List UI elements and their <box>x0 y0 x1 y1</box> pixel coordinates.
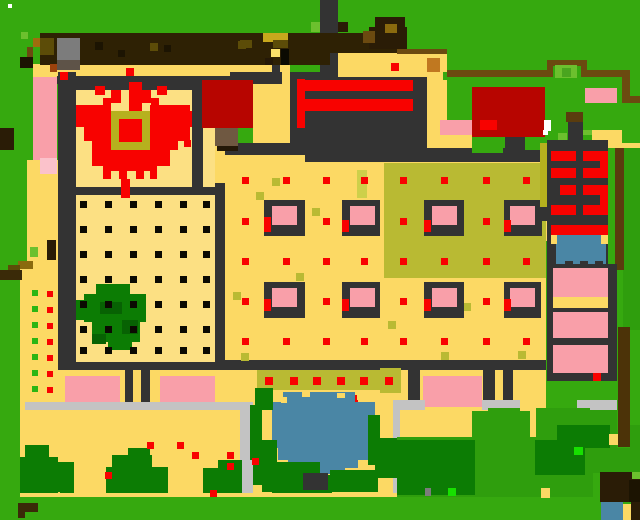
flower-dot <box>441 338 448 345</box>
pixel-block <box>337 393 345 398</box>
grass-tuft <box>241 353 249 361</box>
pixel-block <box>504 299 511 311</box>
pixel-block <box>273 40 288 48</box>
red-shelf <box>560 185 576 195</box>
pixel-block <box>553 297 608 308</box>
flower-dot <box>32 338 38 344</box>
flower-dot <box>441 258 448 265</box>
flower-dot <box>242 338 249 345</box>
pixel-block <box>480 120 497 130</box>
pixel-block <box>543 130 548 135</box>
flower-dot <box>360 377 368 385</box>
seed-dot <box>155 276 162 283</box>
grass-tuft <box>463 303 471 311</box>
flower-dot <box>400 258 407 265</box>
pixel-block <box>47 240 56 260</box>
pixel-block <box>272 288 297 307</box>
pixel-block <box>593 373 601 381</box>
flower-dot <box>227 452 234 459</box>
path <box>393 400 425 410</box>
pixel-block <box>562 68 571 77</box>
seed-dot <box>203 276 210 283</box>
red-shelf <box>600 161 608 168</box>
roof-stripe <box>297 80 413 91</box>
roof-stripe <box>305 99 413 111</box>
flower-dot <box>483 177 490 184</box>
pixel-block <box>272 206 297 225</box>
pixel-block <box>126 68 134 76</box>
path <box>25 402 241 410</box>
outer-wall <box>58 72 76 370</box>
water-corner <box>601 502 623 520</box>
pixel-block <box>540 207 547 221</box>
bush <box>128 448 150 462</box>
sun-emblem <box>150 171 157 179</box>
gate-post <box>125 370 133 403</box>
wood-corner <box>18 503 25 518</box>
seed-dot <box>155 251 162 258</box>
flower-dot <box>265 377 273 385</box>
sun-emblem <box>150 141 178 150</box>
pixel-block <box>510 288 535 307</box>
flower-dot <box>361 177 368 184</box>
flower-dot <box>242 258 249 265</box>
flower-dot <box>323 338 330 345</box>
flower-dot <box>105 472 112 479</box>
seed-dot <box>105 201 112 208</box>
flower-dot <box>523 177 530 184</box>
pixel-block <box>33 38 40 47</box>
flower-dot <box>323 177 330 184</box>
seed-dot <box>180 226 187 233</box>
seed-dot <box>130 276 137 283</box>
tree-canopy <box>623 148 640 330</box>
sun-emblem <box>157 86 167 95</box>
red-shelf <box>551 151 576 161</box>
sun-emblem <box>111 90 121 103</box>
roof-stripe <box>297 79 305 128</box>
flower-dot <box>313 377 321 385</box>
flower-dot <box>400 177 407 184</box>
stone-block <box>57 38 80 60</box>
stone-lantern <box>566 112 583 122</box>
seed-dot <box>130 301 137 308</box>
pixel-block <box>465 100 472 112</box>
plot-frame <box>58 187 215 195</box>
pink-column <box>33 77 57 160</box>
seed-dot <box>203 347 210 354</box>
sun-emblem-center <box>119 119 142 142</box>
pixel-block <box>357 170 367 198</box>
seed-dot <box>130 326 137 333</box>
sun-emblem <box>84 127 111 141</box>
pink-shelf <box>553 268 608 297</box>
seed-dot <box>203 326 210 333</box>
flower-dot <box>400 298 407 305</box>
branch <box>0 270 22 280</box>
pink-shelf <box>553 345 608 373</box>
flower-dot <box>32 386 38 392</box>
pixel-block <box>20 57 33 68</box>
red-shelf <box>583 205 608 215</box>
red-shelf <box>583 185 608 195</box>
garden-fence <box>447 70 547 77</box>
flower-dot <box>323 258 330 265</box>
seed-dot <box>80 276 87 283</box>
garden-fence <box>630 96 640 103</box>
flower-dot <box>283 258 290 265</box>
grass-tuft <box>233 292 241 300</box>
flower-dot <box>252 458 259 465</box>
white-dot <box>8 4 12 8</box>
pixel-block <box>551 235 557 244</box>
pixel-block <box>510 206 535 225</box>
bench <box>440 120 472 135</box>
sun-emblem <box>103 166 157 171</box>
flower-dot <box>523 338 530 345</box>
flower-dot <box>323 218 330 225</box>
pixel-block <box>632 472 640 479</box>
seed-dot <box>130 226 137 233</box>
sun-emblem <box>121 179 130 198</box>
flower-dot <box>242 177 249 184</box>
bush <box>330 470 378 492</box>
pixel-block <box>118 50 125 57</box>
flower-dot <box>290 377 298 385</box>
bush <box>106 467 168 493</box>
seed-dot <box>180 201 187 208</box>
grass-tuft <box>296 273 304 281</box>
sun-emblem <box>136 171 144 179</box>
gate-post <box>141 370 150 403</box>
flower-dot <box>147 442 154 449</box>
orange-block <box>427 58 440 72</box>
sun-emblem <box>150 111 192 127</box>
bench <box>160 376 215 403</box>
flower-dot <box>323 298 330 305</box>
seed-dot <box>80 326 87 333</box>
seed-dot <box>105 251 112 258</box>
pixel-block <box>432 206 457 225</box>
flower-dot <box>32 306 38 312</box>
dark-red-hall <box>202 80 253 128</box>
tree-canopy <box>397 440 475 495</box>
seed-dot <box>155 201 162 208</box>
pixel-block <box>357 395 365 400</box>
red-shelf <box>551 225 608 235</box>
flower-dot <box>32 370 38 376</box>
seed-dot <box>80 347 87 354</box>
pixel-block <box>92 334 106 344</box>
pixel-block <box>460 90 472 100</box>
brown-block <box>215 128 238 146</box>
pixel-block <box>601 235 608 244</box>
pixel-block <box>385 24 397 33</box>
seed-dot <box>180 326 187 333</box>
seed-dot <box>80 201 87 208</box>
pixel-block <box>583 130 592 135</box>
flower-dot <box>32 322 38 328</box>
seed-dot <box>180 251 187 258</box>
plot-frame <box>58 82 192 90</box>
bush <box>375 438 397 478</box>
flower-dot <box>483 218 490 225</box>
bush <box>60 472 74 493</box>
game-viewport[interactable] <box>0 0 640 520</box>
red-shelf <box>600 195 608 205</box>
pixel-block <box>342 220 349 232</box>
tree-canopy <box>535 440 585 475</box>
grass-tuft <box>441 352 449 360</box>
pixel-block <box>338 22 348 32</box>
seed-dot <box>105 276 112 283</box>
flower-dot <box>47 387 53 393</box>
seed-dot <box>155 326 162 333</box>
flower-dot <box>385 377 393 385</box>
flower-dot <box>283 338 290 345</box>
flower-dot <box>47 291 53 297</box>
wood-table <box>629 480 640 502</box>
pixel-block <box>311 22 320 32</box>
flower-dot <box>47 339 53 345</box>
flower-dot <box>483 298 490 305</box>
pixel-block <box>281 49 289 65</box>
pixel-block <box>217 146 238 151</box>
gate-post <box>483 368 495 404</box>
red-shelf <box>583 151 608 161</box>
seed-dot <box>203 251 210 258</box>
pixel-block <box>184 140 191 147</box>
pond <box>278 448 370 460</box>
bench <box>65 376 120 403</box>
sun-emblem <box>129 82 142 111</box>
flower-dot <box>227 463 234 470</box>
pixel-block <box>27 47 33 57</box>
flower-dot <box>523 258 530 265</box>
grass-tuft <box>272 178 280 186</box>
seed-dot <box>155 347 162 354</box>
flower-dot <box>177 442 184 449</box>
seed-dot <box>130 201 137 208</box>
pixel-block <box>609 434 618 445</box>
flower-dot <box>441 177 448 184</box>
pixel-block <box>21 32 28 39</box>
flower-dot <box>361 258 368 265</box>
sun-emblem <box>95 86 105 95</box>
seed-dot <box>80 251 87 258</box>
pixel-block <box>432 288 457 307</box>
pixel-block <box>472 137 503 153</box>
pixel-block <box>150 43 158 51</box>
pixel-block <box>631 502 640 520</box>
pond <box>272 402 375 424</box>
flower-dot <box>32 354 38 360</box>
pixel-block <box>50 64 57 72</box>
sun-emblem <box>103 171 111 179</box>
pixel-block <box>0 128 14 150</box>
pixel-block <box>240 40 252 48</box>
grass-tuft <box>312 208 320 216</box>
pink-patch <box>585 88 617 103</box>
flower-dot <box>192 452 199 459</box>
pixel-block <box>302 392 310 397</box>
seed-dot <box>105 226 112 233</box>
dotted-plot <box>196 183 215 362</box>
pixel-block <box>350 206 375 225</box>
flower-dot <box>361 338 368 345</box>
stone-block <box>57 60 80 70</box>
flower-dot <box>32 290 38 296</box>
sun-emblem <box>92 141 111 150</box>
gate-post <box>408 366 420 404</box>
pixel-block <box>342 299 349 311</box>
branch <box>18 261 33 269</box>
pixel-block <box>271 49 280 57</box>
sun-emblem <box>92 150 170 166</box>
pixel-block <box>623 504 631 520</box>
pixel-block <box>424 220 431 232</box>
pixel-block <box>264 299 271 311</box>
bench <box>423 376 482 407</box>
pixel-block <box>391 63 399 71</box>
pixel-block <box>448 488 456 496</box>
seed-dot <box>155 301 162 308</box>
garden-fence <box>622 70 630 103</box>
pixel-block <box>630 425 640 448</box>
grass-tuft <box>388 321 396 329</box>
tree-canopy <box>584 448 640 473</box>
pixel-block <box>281 397 287 403</box>
seed-dot <box>130 347 137 354</box>
sun-emblem <box>76 111 111 127</box>
pixel-block <box>272 65 280 76</box>
grass-tuft <box>256 192 264 200</box>
pixel-block <box>574 447 583 455</box>
flower-dot <box>242 298 249 305</box>
seed-dot <box>130 251 137 258</box>
pixel-block <box>265 58 273 65</box>
stone <box>303 473 328 490</box>
flower-dot <box>337 377 345 385</box>
tree-trunk <box>615 148 624 270</box>
pixel-block <box>425 488 431 496</box>
pixel-block <box>424 299 431 311</box>
pixel-block <box>540 143 547 207</box>
shrine-pillar <box>505 137 525 155</box>
flower-dot <box>483 258 490 265</box>
flower-dot <box>242 218 249 225</box>
flower-dot <box>400 338 407 345</box>
flower-dot <box>47 307 53 313</box>
flower-dot <box>47 355 53 361</box>
pixel-block <box>558 133 567 140</box>
pixel-block <box>60 72 68 80</box>
flower-dot <box>283 177 290 184</box>
pixel-block <box>453 80 472 90</box>
seed-dot <box>203 201 210 208</box>
pixel-block <box>350 288 375 307</box>
flower-dot <box>47 371 53 377</box>
seed-dot <box>105 326 112 333</box>
pond <box>272 424 375 448</box>
flower-dot <box>210 490 217 497</box>
seed-dot <box>80 301 87 308</box>
pink-column <box>40 158 57 174</box>
seed-dot <box>180 347 187 354</box>
flower-dot <box>483 338 490 345</box>
seed-dot <box>105 301 112 308</box>
flower-dot <box>400 218 407 225</box>
gate-post <box>503 368 513 404</box>
pixel-block <box>95 42 103 50</box>
seed-dot <box>155 226 162 233</box>
seed-dot <box>203 301 210 308</box>
roof-eave <box>397 49 447 54</box>
pixel-block <box>264 217 271 232</box>
seed-dot <box>203 226 210 233</box>
red-shelf <box>583 168 608 178</box>
seed-dot <box>105 347 112 354</box>
pink-shelf <box>553 312 608 338</box>
pixel-block <box>541 488 550 498</box>
pixel-block <box>363 31 375 43</box>
sand-corridor <box>282 63 290 143</box>
tree-trunk <box>618 327 630 447</box>
sun-emblem <box>119 171 127 179</box>
red-shelf <box>551 205 576 215</box>
pixel-block <box>164 45 171 52</box>
plot-frame <box>215 183 225 370</box>
pixel-block <box>40 38 54 55</box>
pixel-block <box>30 247 38 257</box>
pixel-block <box>504 220 511 232</box>
flower-dot <box>47 323 53 329</box>
grass-tuft <box>518 351 526 359</box>
tree-canopy <box>472 411 530 439</box>
plot-frame <box>58 362 225 370</box>
seed-dot <box>180 276 187 283</box>
seed-dot <box>180 301 187 308</box>
seed-dot <box>80 226 87 233</box>
red-shelf <box>551 168 576 178</box>
sun-emblem <box>142 90 151 103</box>
sun-emblem <box>150 127 190 141</box>
